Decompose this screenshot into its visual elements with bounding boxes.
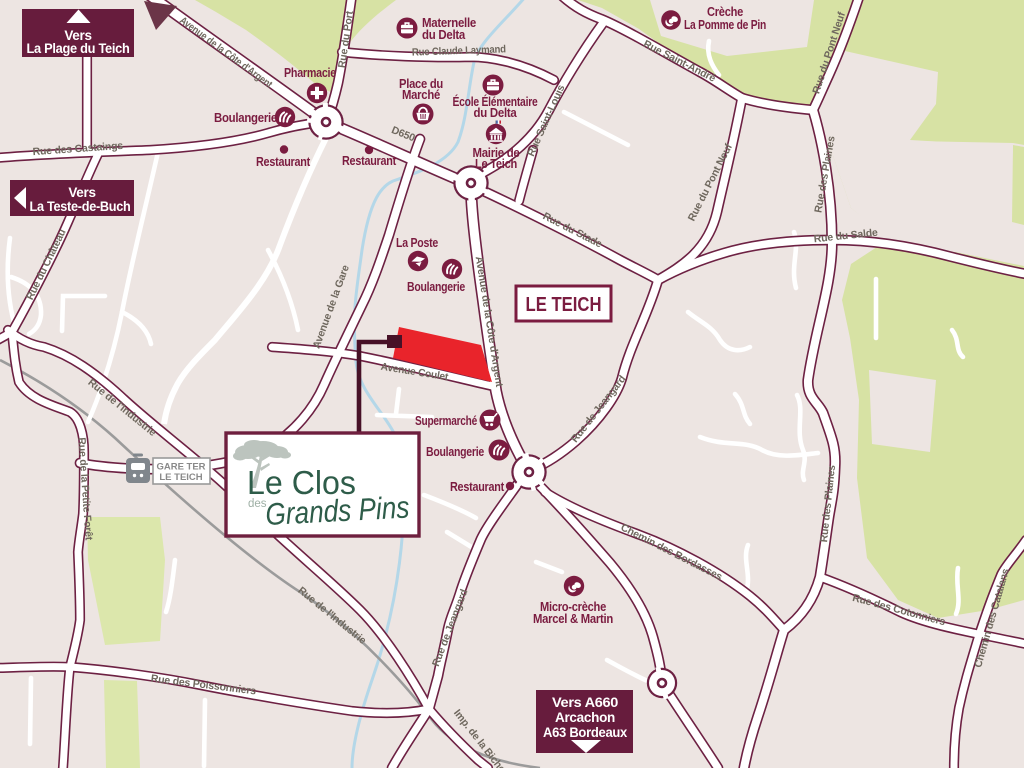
svg-text:La Teste-de-Buch: La Teste-de-Buch (30, 199, 131, 214)
svg-text:Pharmacie: Pharmacie (284, 65, 336, 80)
svg-text:La Pomme de Pin: La Pomme de Pin (684, 17, 766, 32)
svg-text:Restaurant: Restaurant (256, 154, 311, 169)
svg-text:Le Teich: Le Teich (475, 156, 517, 171)
svg-text:Restaurant: Restaurant (342, 153, 397, 168)
svg-text:Arcachon: Arcachon (555, 710, 615, 725)
svg-text:Vers A660: Vers A660 (552, 695, 618, 710)
svg-text:Vers: Vers (68, 185, 95, 200)
svg-text:Marcel & Martin: Marcel & Martin (533, 611, 613, 626)
svg-text:Supermarché: Supermarché (415, 413, 477, 428)
svg-text:Restaurant: Restaurant (450, 479, 505, 494)
svg-text:GARE TER: GARE TER (156, 462, 205, 473)
svg-text:LE TEICH: LE TEICH (159, 472, 202, 483)
svg-text:La Plage du Teich: La Plage du Teich (27, 41, 130, 56)
svg-text:LE TEICH: LE TEICH (526, 293, 602, 316)
svg-text:A63 Bordeaux: A63 Bordeaux (543, 725, 628, 740)
svg-text:du Delta: du Delta (474, 105, 518, 120)
svg-text:Boulangerie: Boulangerie (214, 110, 277, 125)
svg-text:Boulangerie: Boulangerie (407, 279, 465, 294)
svg-text:du Delta: du Delta (422, 27, 466, 42)
svg-text:La Poste: La Poste (396, 235, 438, 250)
svg-text:Marché: Marché (402, 87, 440, 102)
svg-text:Boulangerie: Boulangerie (426, 444, 484, 459)
